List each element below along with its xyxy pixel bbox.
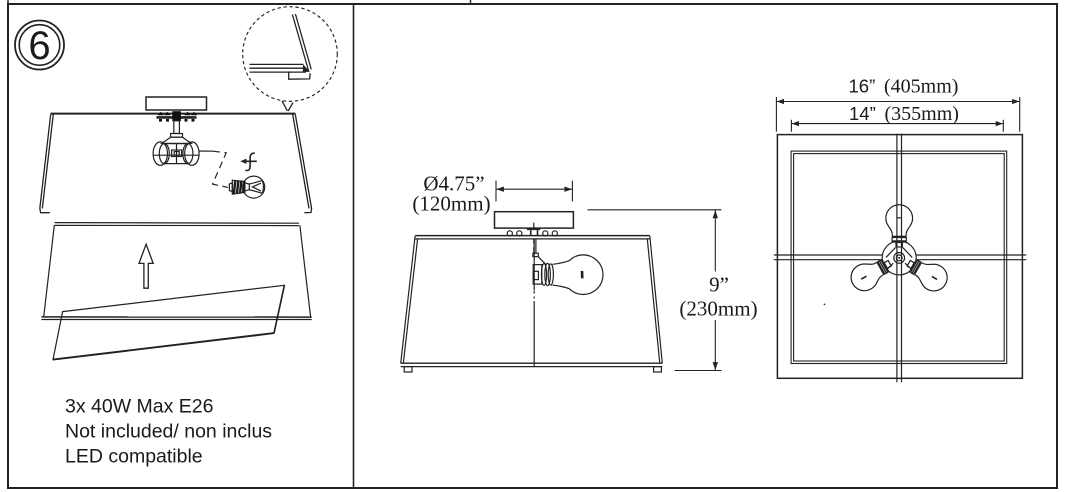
- svg-text:14”: 14”: [849, 103, 876, 124]
- svg-text:(355mm): (355mm): [885, 103, 959, 125]
- svg-text:(230mm): (230mm): [679, 297, 757, 321]
- svg-text:6: 6: [28, 24, 50, 68]
- svg-text:(120mm): (120mm): [412, 192, 490, 216]
- svg-text:9”: 9”: [709, 273, 729, 297]
- svg-text:LED compatible: LED compatible: [65, 446, 203, 468]
- svg-text:3x 40W Max E26: 3x 40W Max E26: [65, 396, 213, 418]
- svg-text:(405mm): (405mm): [884, 76, 958, 98]
- svg-text:Not included/ non inclus: Not included/ non inclus: [65, 421, 272, 443]
- svg-text:16”: 16”: [849, 76, 876, 97]
